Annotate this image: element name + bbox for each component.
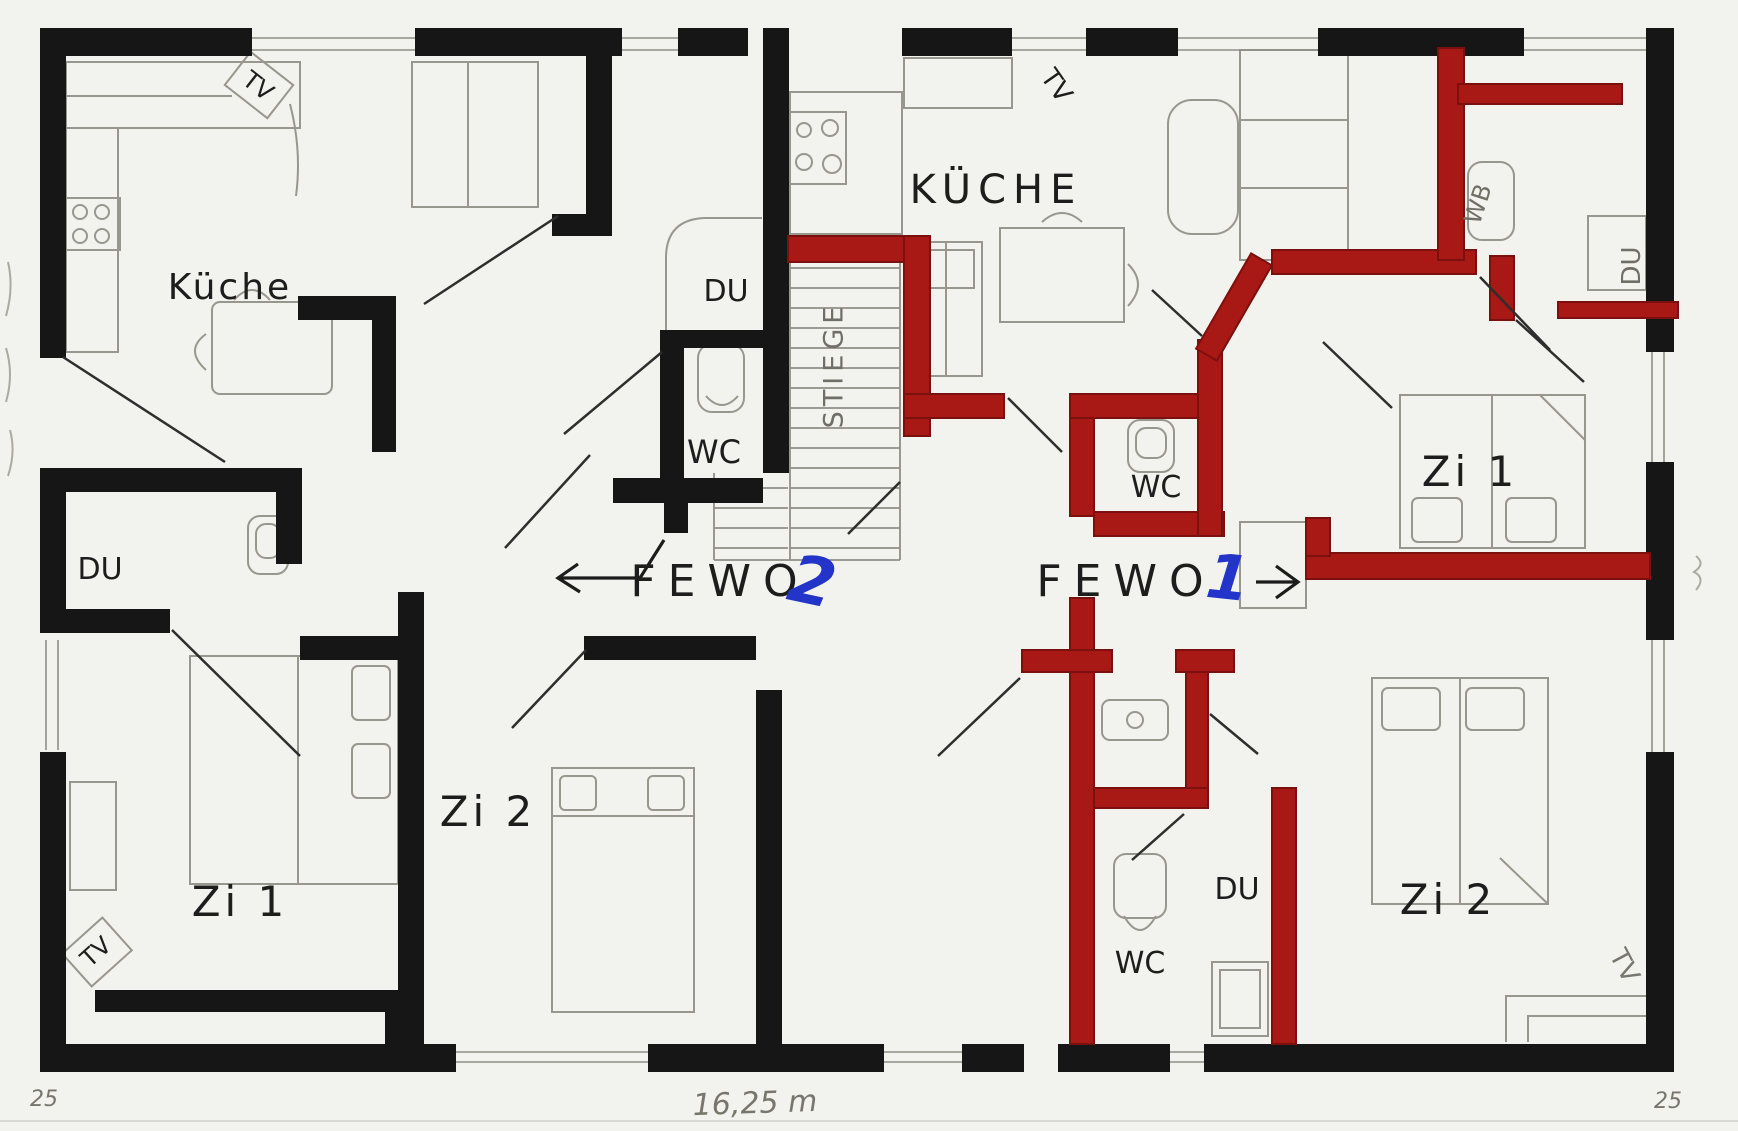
floor-plan: Küche KÜCHE DU WC DU Zi 1 Zi 2 STIEGE WC… [0,0,1738,1131]
sheet-number-left: 25 [30,1089,58,1111]
fewo1-title: FEWO [1036,560,1215,604]
sofa-sketch-top-right [1168,50,1348,260]
toilet-sketch-fewo2-wc [698,344,744,412]
shower-sketch-fewo1-lower [1212,962,1268,1036]
width-dimension: 16,25 m [692,1087,818,1121]
bed-sketch-fewo1-zi2 [1372,678,1548,904]
fewo1-number: 1 [1203,545,1252,611]
room-label-fewo1-zi1: Zi 1 [1422,451,1519,493]
room-label-fewo1-kitchen: KÜCHE [910,170,1083,210]
room-label-fewo2-shower-hall: DU [703,277,748,307]
room-label-fewo2-shower-left: DU [77,555,122,585]
toilet-sketch-fewo1-upper [1128,420,1174,472]
tv-box-sketches [62,52,298,987]
room-label-fewo2-wc: WC [687,436,741,468]
room-label-fewo1-shower-bottom: DU [1214,875,1259,905]
room-label-fewo2-zi2: Zi 2 [440,791,537,833]
room-label-fewo1-wc-bottom: WC [1115,949,1166,979]
sheet-number-right: 25 [1654,1091,1682,1113]
bed-sketch-fewo2-zi2 [552,768,694,1012]
room-label-fewo1-shower-top: DU [1619,246,1645,285]
room-label-fewo2-kitchen: Küche [168,270,292,306]
kitchen-counter-sketch-left [64,62,300,352]
floor-plan-drawing [0,0,1738,1131]
fewo1-arrow-right [1256,566,1298,598]
room-label-staircase: STIEGE [821,302,848,429]
room-label-fewo2-zi1: Zi 1 [192,881,289,923]
room-label-fewo1-wc-top: WC [1131,473,1182,503]
kitchen-table-sketch-right [1000,213,1138,322]
room-label-fewo1-zi2: Zi 2 [1400,879,1497,921]
tv-bench-sketch-fewo1 [1506,996,1650,1042]
sink-sketch-fewo1 [1102,700,1168,740]
wardrobe-sketch-top [412,62,538,207]
toilet-sketch-fewo1-lower [1114,854,1166,930]
fewo2-title: FEWO [630,560,809,604]
